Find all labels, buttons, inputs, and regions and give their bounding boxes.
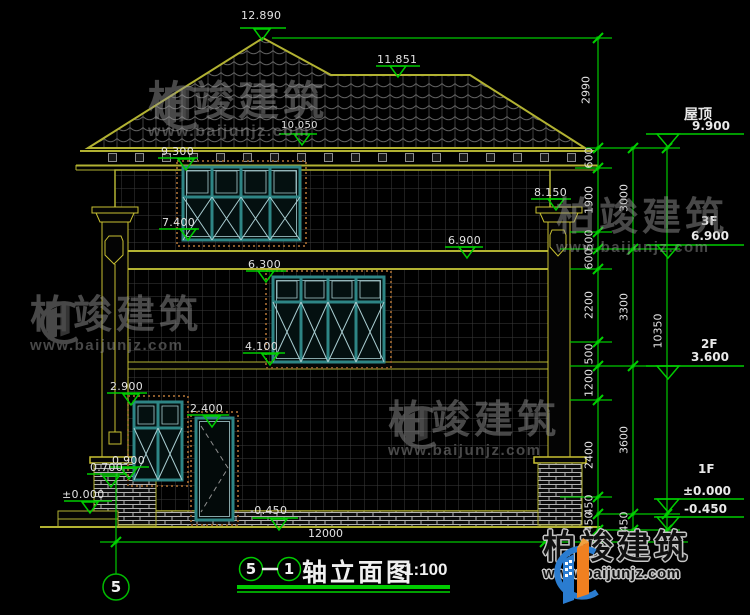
dim-detail-4: 2200 <box>583 291 596 319</box>
dim-detail-1: 1900 <box>583 186 596 214</box>
marker-2f-sill: 4.100 <box>245 340 278 353</box>
marker-slab-bottom: 6.300 <box>248 258 281 271</box>
marker-door-top: 2.400 <box>190 402 223 415</box>
dim-detail-2: 500 <box>583 230 596 251</box>
marker-column-top: 8.150 <box>534 186 567 199</box>
window-3f <box>177 161 306 246</box>
dim-total-width: 12000 <box>308 527 343 540</box>
baijun-logo-icon <box>543 530 609 610</box>
dim-roof-height: 2990 <box>580 76 593 104</box>
marker-base: -0.450 <box>250 504 287 517</box>
drawing-scale: 1:100 <box>404 560 447 580</box>
marker-pedestal-top: 0.700 <box>90 461 123 474</box>
dim-detail-6: 1200 <box>583 369 596 397</box>
marker-roof-ridge: 11.851 <box>377 53 417 66</box>
level-1f-elev-below: -0.450 <box>684 502 727 516</box>
title-axis-end: 1 <box>284 560 294 578</box>
roof <box>76 38 598 170</box>
cad-elevation-canvas: 12.890 11.851 10.050 9.300 8.150 7.400 6… <box>0 0 750 615</box>
level-3f-name: 3F <box>701 214 718 228</box>
marker-3f-level: 6.900 <box>448 234 481 247</box>
dim-total-height: 10350 <box>652 314 665 349</box>
elevation-linework <box>0 0 750 615</box>
right-pedestal <box>538 463 582 525</box>
level-1f-elev: ±0.000 <box>683 484 731 498</box>
floor-slab-3f <box>115 251 550 269</box>
title-axis-start: 5 <box>246 560 256 578</box>
window-1f <box>128 396 188 486</box>
level-1f-name: 1F <box>698 462 715 476</box>
footer-brand-block: 柏竣建筑 www.baijunjz.com <box>543 530 691 582</box>
dim-detail-3: 600 <box>583 249 596 270</box>
level-2f-elev: 3.600 <box>691 350 729 364</box>
entry-door <box>191 412 238 525</box>
steps <box>58 511 118 519</box>
marker-eave-bottom: 9.300 <box>161 145 194 158</box>
dim-detail-5: 500 <box>583 344 596 365</box>
drawing-title: 轴立面图 <box>302 553 414 589</box>
dim-floor-0: 3000 <box>618 184 631 212</box>
marker-eave-top: 10.050 <box>281 120 318 131</box>
marker-ground: ±0.000 <box>62 488 105 501</box>
marker-roof-peak: 12.890 <box>241 9 281 22</box>
dim-floor-2: 3600 <box>618 426 631 454</box>
dim-detail-7: 2400 <box>583 441 596 469</box>
axis-bubble-label: 5 <box>111 578 121 596</box>
level-3f-elev: 6.900 <box>691 229 729 243</box>
marker-3f-sill: 7.400 <box>162 216 195 229</box>
dim-detail-0: 600 <box>583 148 596 169</box>
level-roof-elev: 9.900 <box>692 119 730 133</box>
marker-1f-window-top: 2.900 <box>110 380 143 393</box>
dim-floor-1: 3300 <box>618 293 631 321</box>
level-2f-name: 2F <box>701 337 718 351</box>
